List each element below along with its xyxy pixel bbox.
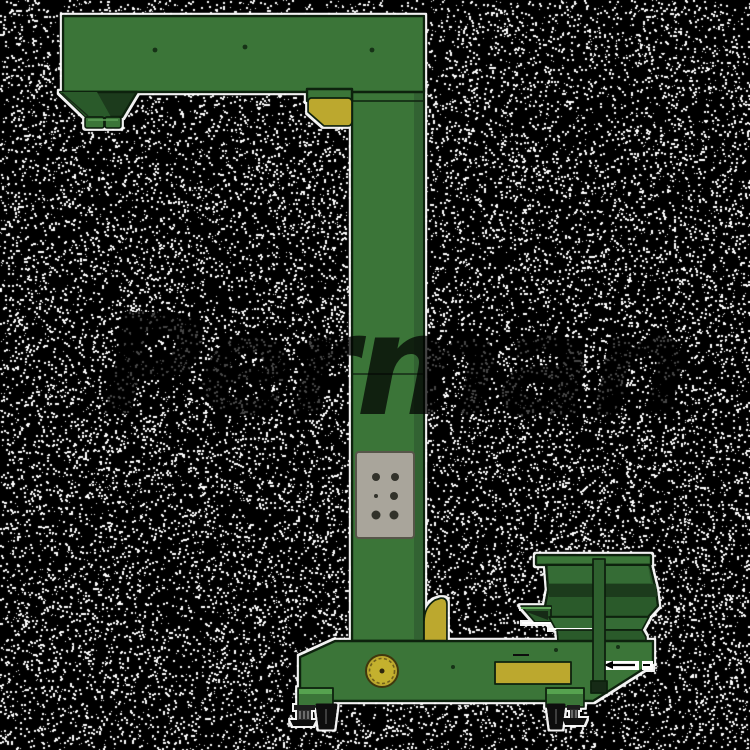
top-arm	[63, 16, 424, 101]
bottom-corner-bracket	[424, 598, 447, 641]
watermark: Perman	[102, 285, 687, 448]
caster-wheel-right	[548, 705, 564, 728]
watermark-text: Perman	[102, 285, 687, 448]
hopper-outlet	[105, 117, 121, 128]
leveling-foot-right	[562, 705, 587, 725]
arm-bolt	[243, 45, 248, 50]
discharge-hopper	[60, 92, 137, 128]
electrical-panel	[356, 452, 414, 538]
drive-pulley	[366, 655, 398, 687]
arm-bolt	[153, 48, 158, 53]
arrow-annotation	[602, 661, 653, 670]
bowl-feeder	[521, 555, 658, 641]
machine-illustration: Perman	[0, 0, 750, 750]
top-corner-bracket	[308, 98, 352, 126]
base-yellow-plate	[495, 662, 571, 684]
caster-wheel-left	[317, 705, 336, 728]
arm-bolt	[370, 48, 375, 53]
hopper-outlet	[85, 117, 104, 128]
bowl-chute	[521, 606, 551, 623]
product-image: Perman	[0, 0, 750, 750]
leveling-foot-left	[290, 705, 316, 726]
bowl-support-pole	[591, 559, 607, 693]
